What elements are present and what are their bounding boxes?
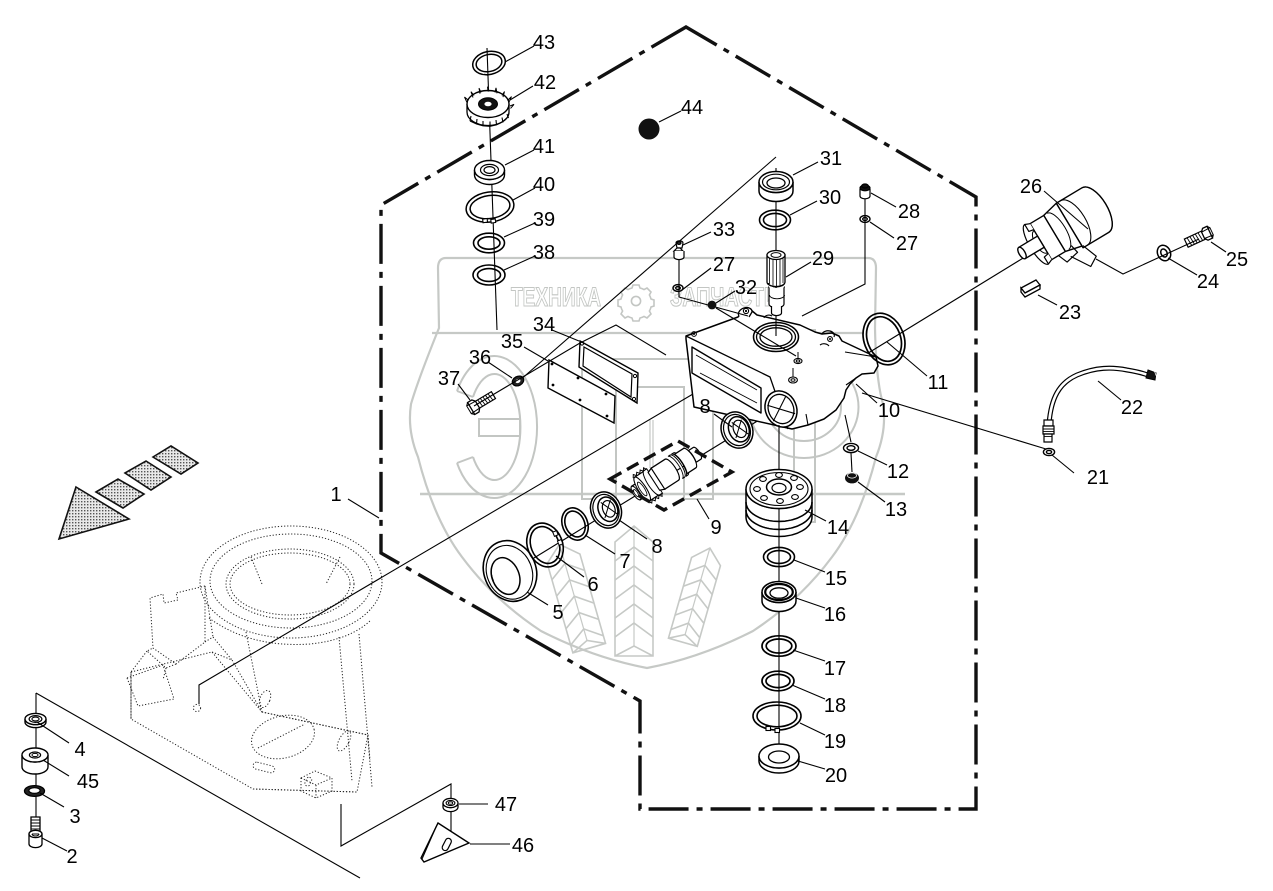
svg-text:26: 26 [1020,176,1042,198]
svg-text:38: 38 [533,242,555,264]
svg-text:10: 10 [878,400,900,422]
svg-text:37: 37 [438,368,460,390]
svg-text:16: 16 [824,604,846,626]
svg-text:15: 15 [825,568,847,590]
svg-text:44: 44 [681,97,703,119]
svg-text:22: 22 [1121,397,1143,419]
svg-text:41: 41 [533,136,555,158]
svg-text:32: 32 [735,277,757,299]
svg-text:39: 39 [533,209,555,231]
svg-text:6: 6 [587,574,598,596]
svg-text:14: 14 [827,517,849,539]
svg-text:29: 29 [812,248,834,270]
svg-text:33: 33 [713,219,735,241]
svg-text:28: 28 [898,201,920,223]
svg-text:40: 40 [533,174,555,196]
svg-text:43: 43 [533,32,555,54]
svg-text:12: 12 [887,461,909,483]
svg-text:11: 11 [928,372,949,394]
svg-text:5: 5 [552,602,563,624]
svg-text:19: 19 [824,731,846,753]
svg-text:25: 25 [1226,249,1248,271]
svg-text:27: 27 [896,233,918,255]
svg-text:8: 8 [699,396,710,418]
svg-text:20: 20 [825,765,847,787]
svg-text:27: 27 [713,254,735,276]
svg-text:34: 34 [533,314,555,336]
svg-text:42: 42 [534,72,556,94]
svg-text:17: 17 [824,658,846,680]
svg-text:1: 1 [330,484,341,506]
svg-text:2: 2 [66,846,77,868]
svg-text:3: 3 [69,806,80,828]
svg-text:46: 46 [512,835,534,857]
svg-text:13: 13 [885,499,907,521]
svg-text:47: 47 [495,794,517,816]
svg-text:36: 36 [469,347,491,369]
svg-text:4: 4 [74,739,85,761]
svg-text:23: 23 [1059,302,1081,324]
svg-text:ТЕХНИКА: ТЕХНИКА [511,282,601,312]
svg-text:35: 35 [501,331,523,353]
svg-text:7: 7 [619,551,630,573]
svg-text:24: 24 [1197,271,1219,293]
svg-text:8: 8 [651,536,662,558]
svg-text:18: 18 [824,695,846,717]
svg-text:30: 30 [819,187,841,209]
svg-text:45: 45 [77,771,99,793]
svg-text:9: 9 [710,517,721,539]
svg-text:21: 21 [1087,467,1109,489]
svg-text:31: 31 [820,148,842,170]
